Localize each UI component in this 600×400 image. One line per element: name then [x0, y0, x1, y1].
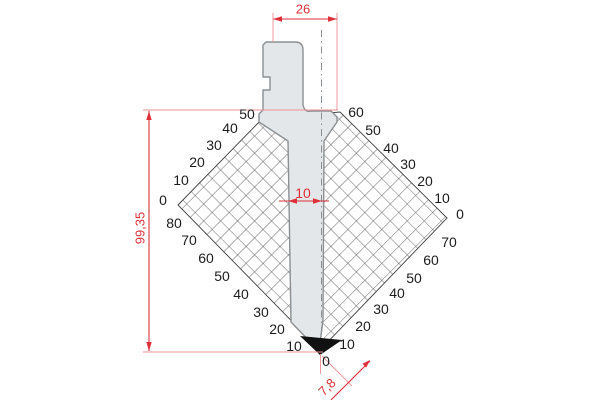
punch-diagram-svg — [0, 0, 600, 400]
technical-drawing-canvas: 26 99,35 10 7,8 0 5040302010080706050403… — [0, 0, 600, 400]
dimension-7-8-graphics — [321, 354, 371, 400]
